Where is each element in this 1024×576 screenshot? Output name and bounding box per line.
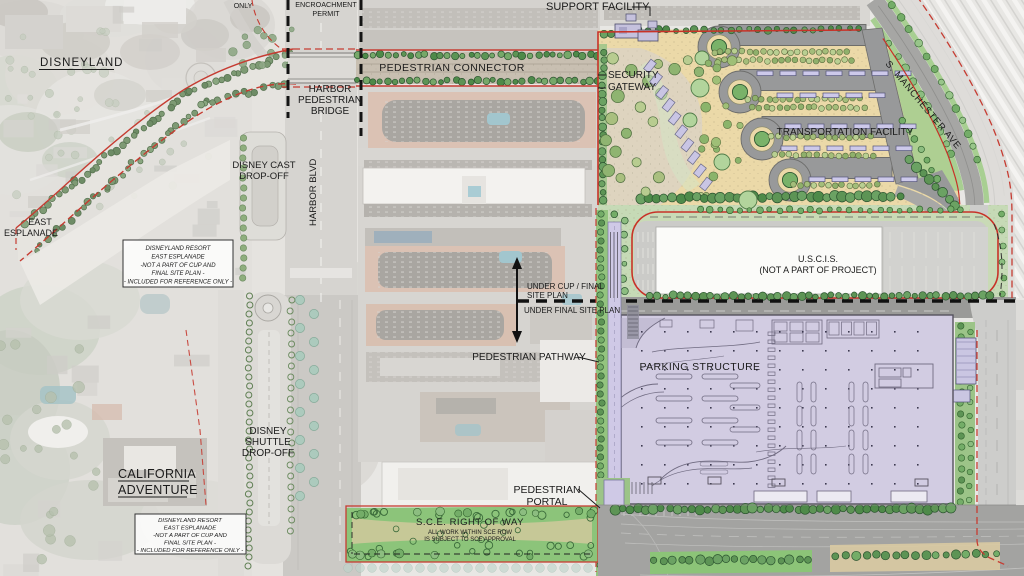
svg-text:S.C.E. RIGHT OF WAY: S.C.E. RIGHT OF WAY <box>416 517 524 528</box>
svg-text:PEDESTRIAN: PEDESTRIAN <box>298 95 362 106</box>
svg-text:EAST ESPLANADE: EAST ESPLANADE <box>164 526 216 532</box>
svg-text:PEDESTRIAN: PEDESTRIAN <box>513 484 580 496</box>
svg-text:PERMIT: PERMIT <box>312 9 340 18</box>
svg-text:SHUTTLE: SHUTTLE <box>245 437 291 448</box>
svg-text:ENCROACHMENT: ENCROACHMENT <box>295 0 357 9</box>
svg-text:(NOT A PART OF PROJECT): (NOT A PART OF PROJECT) <box>759 265 876 275</box>
svg-text:- INCLUDED FOR REFERENCE ONLY: - INCLUDED FOR REFERENCE ONLY - <box>137 548 243 554</box>
svg-text:SECURITY: SECURITY <box>608 70 659 81</box>
svg-text:TRANSPORTATION FACILITY: TRANSPORTATION FACILITY <box>777 127 914 138</box>
svg-text:ADVENTURE: ADVENTURE <box>118 483 198 497</box>
svg-text:BRIDGE: BRIDGE <box>311 106 350 117</box>
svg-text:FINAL SITE PLAN -: FINAL SITE PLAN - <box>152 271 205 277</box>
svg-text:GATEWAY: GATEWAY <box>608 82 656 93</box>
svg-text:HARBOR BLVD: HARBOR BLVD <box>308 158 319 226</box>
svg-text:UNDER CUP / FINAL: UNDER CUP / FINAL <box>527 282 604 291</box>
svg-text:PEDESTRIAN PATHWAY: PEDESTRIAN PATHWAY <box>472 352 586 363</box>
svg-text:FINAL SITE PLAN -: FINAL SITE PLAN - <box>164 541 216 547</box>
svg-text:UNDER FINAL SITE PLAN: UNDER FINAL SITE PLAN <box>524 306 620 315</box>
svg-text:-NOT A PART OF CUP AND: -NOT A PART OF CUP AND <box>153 533 227 539</box>
svg-text:DROP-OFF: DROP-OFF <box>239 171 289 182</box>
svg-text:PARKING STRUCTURE: PARKING STRUCTURE <box>640 361 761 373</box>
svg-text:IS SUBJECT TO SCE APPROVAL: IS SUBJECT TO SCE APPROVAL <box>424 537 516 543</box>
svg-text:DISNEYLAND: DISNEYLAND <box>40 57 124 69</box>
svg-text:ONLY: ONLY <box>234 3 253 10</box>
svg-text:DROP-OFF: DROP-OFF <box>242 448 294 459</box>
svg-text:-NOT A PART OF CUP AND: -NOT A PART OF CUP AND <box>140 263 216 269</box>
svg-text:SITE PLAN: SITE PLAN <box>527 291 568 300</box>
svg-text:ESPLANADE: ESPLANADE <box>4 228 58 238</box>
svg-text:DISNEY CAST: DISNEY CAST <box>232 160 295 171</box>
svg-text:HARBOR: HARBOR <box>309 84 352 95</box>
svg-text:DISNEYLAND RESORT: DISNEYLAND RESORT <box>158 518 222 524</box>
svg-text:EAST ESPLANADE: EAST ESPLANADE <box>151 254 205 260</box>
svg-text:U.S.C.I.S.: U.S.C.I.S. <box>798 254 838 264</box>
svg-text:EAST: EAST <box>28 217 52 227</box>
svg-text:PORTAL: PORTAL <box>526 496 567 508</box>
svg-text:ALL WORK WITHIN SCE ROW: ALL WORK WITHIN SCE ROW <box>428 530 512 536</box>
svg-text:PEDESTRIAN CONNECTOR: PEDESTRIAN CONNECTOR <box>379 62 525 74</box>
svg-text:DISNEYLAND RESORT: DISNEYLAND RESORT <box>146 246 212 252</box>
svg-text:CALIFORNIA: CALIFORNIA <box>118 467 196 481</box>
svg-text:- INCLUDED FOR REFERENCE ONLY: - INCLUDED FOR REFERENCE ONLY - <box>124 280 232 286</box>
svg-text:DISNEY: DISNEY <box>249 426 287 437</box>
